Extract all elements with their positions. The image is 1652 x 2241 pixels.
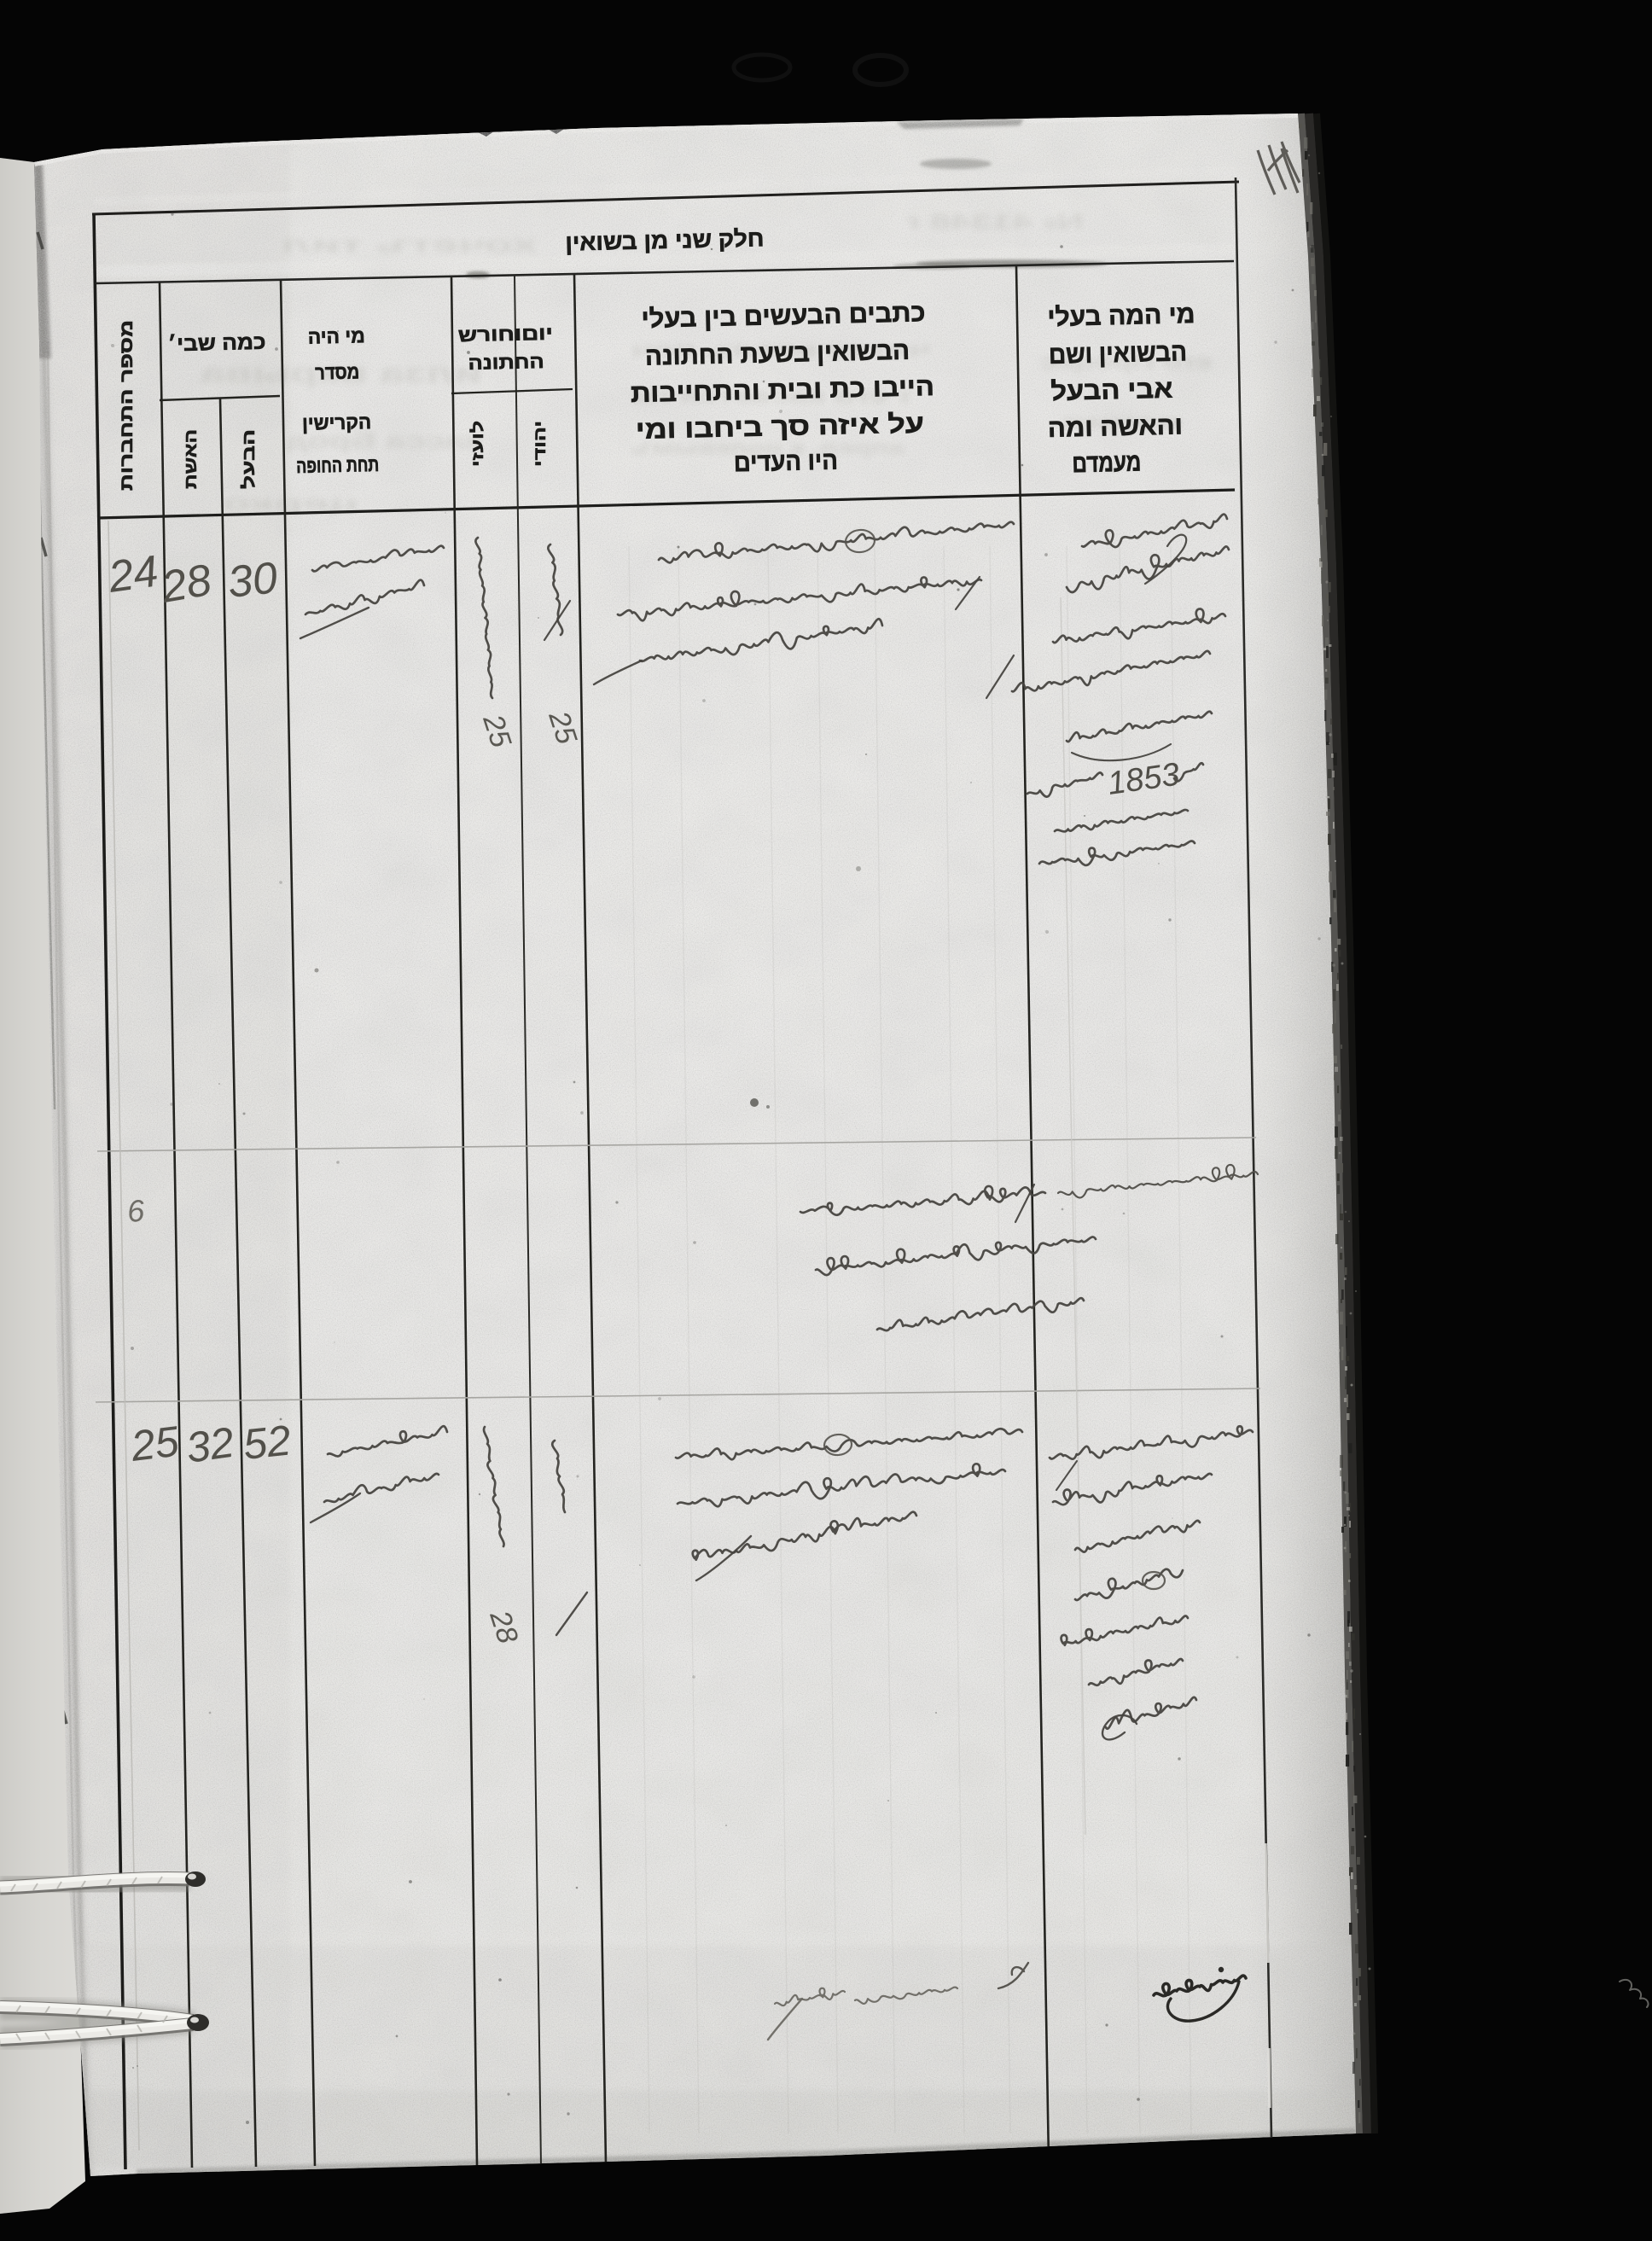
svg-text:כמה שבי׳: כמה שבי׳ xyxy=(167,331,266,357)
svg-text:אבי הבעל: אבי הבעל xyxy=(1050,375,1173,406)
svg-text:מי המה בעלי: מי המה בעלי xyxy=(1047,300,1195,332)
svg-text:52: 52 xyxy=(241,1416,293,1469)
svg-text:הבשואין בשעת החתונה: הבשואין בשעת החתונה xyxy=(645,337,910,371)
svg-text:28: 28 xyxy=(157,556,215,613)
svg-text:מסדר: מסדר xyxy=(315,360,360,383)
svg-text:25: 25 xyxy=(128,1417,182,1471)
svg-text:הקרישין: הקרישין xyxy=(302,410,372,434)
svg-text:תחת החופה: תחת החופה xyxy=(296,453,380,477)
svg-text:הבשואין ושם: הבשואין ושם xyxy=(1049,338,1188,370)
svg-text:хочетъ тил: хочетъ тил xyxy=(282,231,538,257)
svg-text:חלק שני מן בשואין: חלק שני מן בשואין xyxy=(565,225,765,255)
svg-text:והאשה ומה: והאשה ומה xyxy=(1048,411,1184,443)
svg-text:לועזי: לועזי xyxy=(469,421,487,467)
svg-text:מספר התחברות: מספר התחברות xyxy=(117,320,137,491)
svg-text:30: 30 xyxy=(225,553,280,608)
svg-text:החתונה: החתונה xyxy=(468,351,544,374)
svg-text:יוםוחורש: יוםוחורש xyxy=(458,323,554,346)
svg-text:6: 6 xyxy=(126,1193,147,1229)
svg-text:32: 32 xyxy=(183,1418,237,1472)
svg-text:האשת: האשת xyxy=(182,429,201,489)
svg-text:מי היה: מי היה xyxy=(307,324,365,348)
svg-text:יהודי: יהודי xyxy=(532,421,550,467)
svg-text:היו העדים: היו העדים xyxy=(733,447,838,478)
svg-text:24: 24 xyxy=(105,546,161,602)
svg-text:№ 41348 г: № 41348 г xyxy=(905,211,1084,234)
svg-text:מעמדם: מעמדם xyxy=(1072,449,1142,479)
svg-text:הבעל: הבעל xyxy=(240,429,259,489)
